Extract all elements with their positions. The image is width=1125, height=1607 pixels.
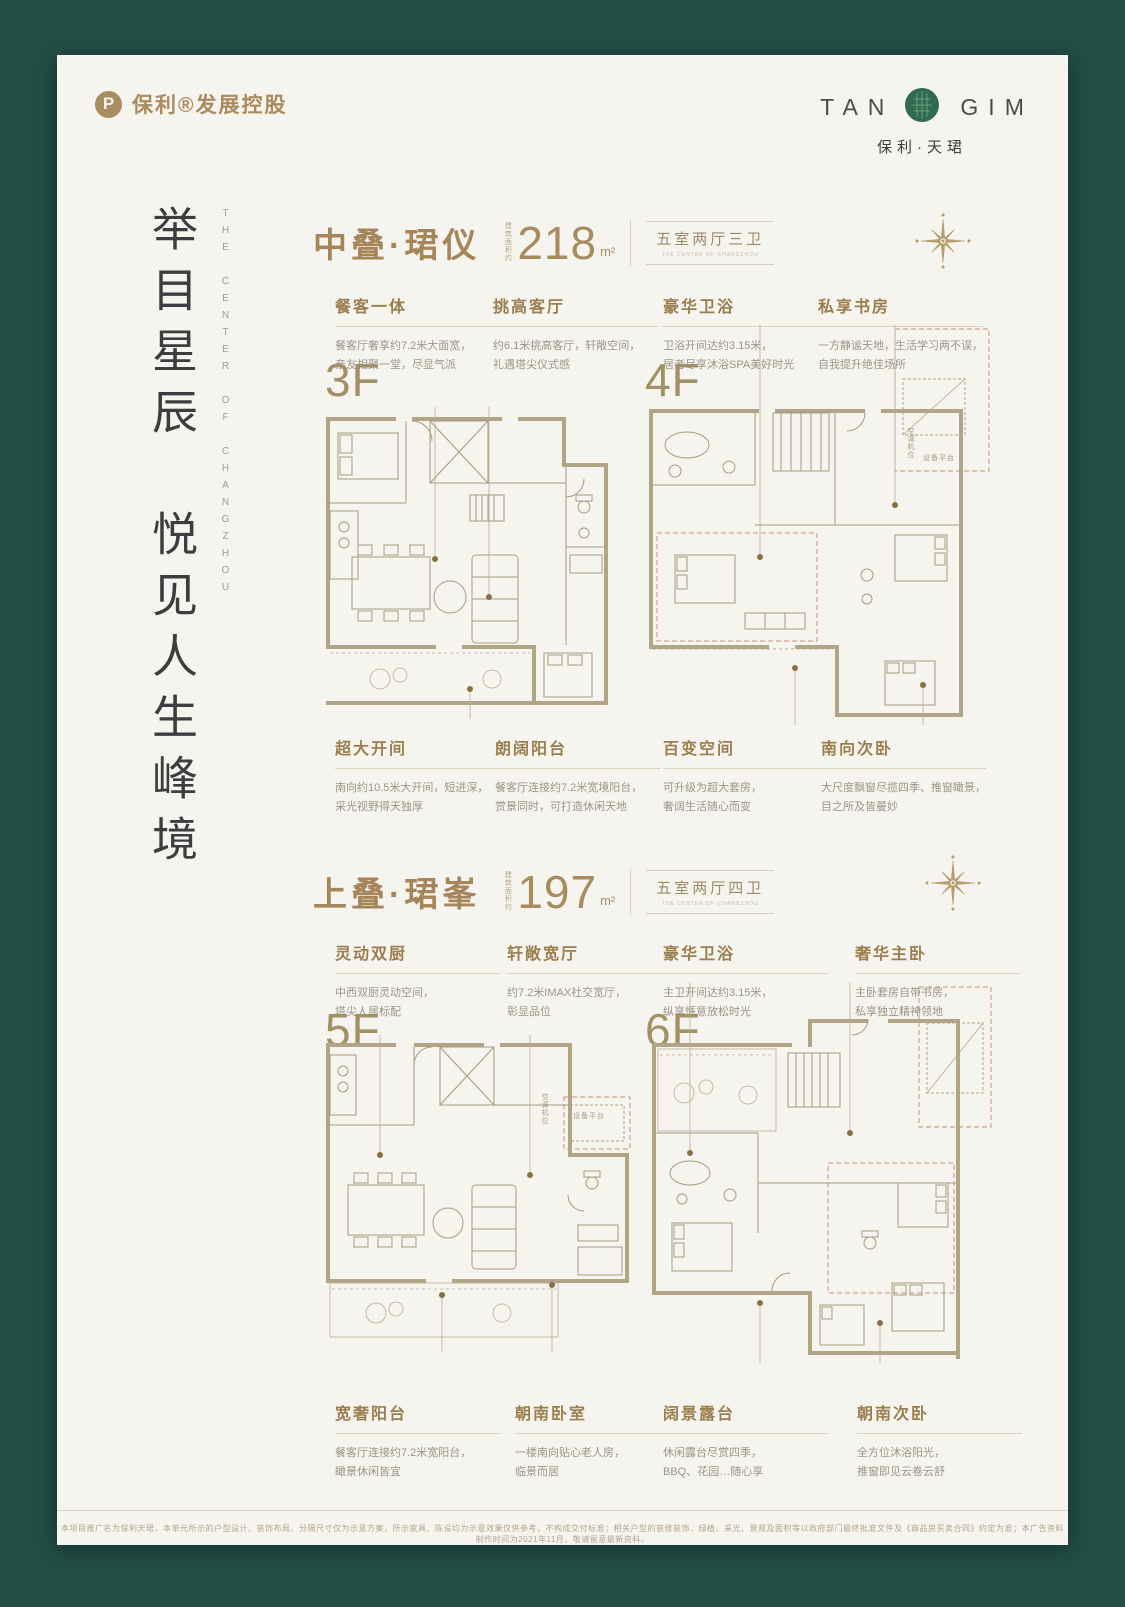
divider <box>663 1433 828 1434</box>
area-prefix: 建筑面积约 <box>502 871 512 913</box>
tangim-circle-icon <box>904 87 940 128</box>
divider <box>515 1433 680 1434</box>
spec-sub-text: THE CENTER OF CHANGZHOU <box>656 252 764 258</box>
feature-desc: 大尺度飘窗尽揽四季、推窗瞰景， 目之所及皆曼妙 <box>821 779 986 818</box>
feature-south-bedroom: 南向次卧 大尺度飘窗尽揽四季、推窗瞰景， 目之所及皆曼妙 <box>821 735 986 818</box>
feature-desc: 餐客厅连接约7.2米宽境阳台， 赏景同时，可打造休闲天地 <box>495 779 660 818</box>
divider <box>335 1433 500 1434</box>
feature-desc: 全方位沐浴阳光， 推窗即见云卷云舒 <box>857 1444 1022 1483</box>
feature-title: 超大开间 <box>335 735 500 759</box>
divider <box>335 326 500 327</box>
compass-icon <box>915 213 971 274</box>
brand-name: 保利®发展控股 <box>132 89 287 119</box>
feature-highceiling: 挑高客厅 约6.1米挑高客厅，轩敞空间， 礼遇塔尖仪式感 <box>493 293 658 376</box>
disclaimer-text: 本项目推广名为保利天珺，本单元所示的户型设计、装饰布局、分隔尺寸仅为示意方案，所… <box>57 1523 1068 1545</box>
hero-headline-en: THE CENTER OF CHANGZHOU <box>220 208 231 658</box>
brand-logo: P 保利®发展控股 <box>95 89 287 119</box>
divider <box>630 869 631 915</box>
feature-title: 阔景露台 <box>663 1400 828 1424</box>
divider <box>335 768 500 769</box>
poly-logo-icon: P <box>95 91 122 118</box>
floor-plan-4f <box>645 325 997 725</box>
feature-title: 私享书房 <box>818 293 983 317</box>
feature-desc: 一楼南向贴心老人房， 临景而居 <box>515 1444 680 1483</box>
floor-plan-5f <box>322 1035 637 1352</box>
feature-desc: 南向约10.5米大开间，短进深， 采光视野得天独厚 <box>335 779 500 818</box>
divider <box>495 768 660 769</box>
floor-plan-3f <box>322 407 612 719</box>
feature-wide-bay: 超大开间 南向约10.5米大开间，短进深， 采光视野得天独厚 <box>335 735 500 818</box>
floor-label-3f: 3F <box>325 357 381 403</box>
feature-desc: 餐客厅连接约7.2米宽阳台， 瞰景休闲皆宜 <box>335 1444 500 1483</box>
plan-note-equipment: 设备平台 <box>923 453 955 463</box>
project-logo: TAN GIM 保利·天珺 <box>802 87 1042 157</box>
divider <box>821 768 986 769</box>
feature-desc: 休闲露台尽赏四季， BBQ、花园…随心享 <box>663 1444 828 1483</box>
area-group: 建筑面积约 218 m² 五室两厅三卫 THE CENTER OF CHANGZ… <box>502 220 774 266</box>
feature-title: 朗阔阳台 <box>495 735 660 759</box>
feature-title: 挑高客厅 <box>493 293 658 317</box>
project-logo-right: GIM <box>950 94 1033 121</box>
feature-title: 豪华卫浴 <box>663 293 828 317</box>
feature-title: 朝南卧室 <box>515 1400 680 1424</box>
section-title: 上叠·珺峯 <box>313 867 480 916</box>
divider <box>630 220 631 266</box>
footer-divider <box>57 1510 1068 1511</box>
feature-title: 百变空间 <box>663 735 828 759</box>
area-unit: m² <box>600 893 615 908</box>
divider <box>855 973 1020 974</box>
area-value: 197 <box>517 869 597 915</box>
plan-note-ac: 空调机位 <box>539 1093 549 1127</box>
compass-icon <box>925 855 981 916</box>
spec-text: 五室两厅四卫 <box>656 877 764 898</box>
spec-box: 五室两厅三卫 THE CENTER OF CHANGZHOU <box>646 221 774 265</box>
feature-title: 宽奢阳台 <box>335 1400 500 1424</box>
divider <box>663 768 828 769</box>
feature-terrace: 阔景露台 休闲露台尽赏四季， BBQ、花园…随心享 <box>663 1400 828 1483</box>
feature-title: 餐客一体 <box>335 293 500 317</box>
feature-wide-balcony: 宽奢阳台 餐客厅连接约7.2米宽阳台， 瞰景休闲皆宜 <box>335 1400 500 1483</box>
feature-title: 南向次卧 <box>821 735 986 759</box>
divider <box>335 973 500 974</box>
spec-sub-text: THE CENTER OF CHANGZHOU <box>656 901 764 907</box>
section-title: 中叠·珺仪 <box>313 218 480 267</box>
feature-south-second: 朝南次卧 全方位沐浴阳光， 推窗即见云卷云舒 <box>857 1400 1022 1483</box>
area-unit: m² <box>600 244 615 259</box>
feature-title: 朝南次卧 <box>857 1400 1022 1424</box>
section-header-mid: 中叠·珺仪 建筑面积约 218 m² 五室两厅三卫 THE CENTER OF … <box>313 218 774 267</box>
floor-plan-6f <box>648 983 995 1363</box>
plan-note-ac: 空调机位 <box>905 427 915 461</box>
spec-box: 五室两厅四卫 THE CENTER OF CHANGZHOU <box>646 870 774 914</box>
divider <box>857 1433 1022 1434</box>
project-logo-left: TAN <box>810 94 894 121</box>
feature-desc: 可升级为超大套房， 奢阔生活随心而变 <box>663 779 828 818</box>
feature-south-room: 朝南卧室 一楼南向贴心老人房， 临景而居 <box>515 1400 680 1483</box>
area-group: 建筑面积约 197 m² 五室两厅四卫 THE CENTER OF CHANGZ… <box>502 869 774 915</box>
feature-title: 豪华卫浴 <box>663 940 828 964</box>
section-header-upper: 上叠·珺峯 建筑面积约 197 m² 五室两厅四卫 THE CENTER OF … <box>313 867 774 916</box>
feature-title: 灵动双厨 <box>335 940 500 964</box>
area-prefix: 建筑面积约 <box>502 222 512 264</box>
feature-desc: 约6.1米挑高客厅，轩敞空间， 礼遇塔尖仪式感 <box>493 337 658 376</box>
spec-text: 五室两厅三卫 <box>656 228 764 249</box>
hero-headline: 举目星辰 悦见人生峰境 <box>139 205 205 965</box>
plan-note-equipment: 设备平台 <box>573 1111 605 1121</box>
feature-title: 轩敞宽厅 <box>507 940 672 964</box>
area-value: 218 <box>517 220 597 266</box>
divider <box>507 973 672 974</box>
project-name: 保利·天珺 <box>802 136 1042 157</box>
poster-paper: P 保利®发展控股 TAN GIM 保利·天珺 举目星辰 悦见人生峰境 THE … <box>57 55 1068 1545</box>
divider <box>493 326 658 327</box>
feature-title: 奢华主卧 <box>855 940 1020 964</box>
divider <box>663 973 828 974</box>
feature-flex-space: 百变空间 可升级为超大套房， 奢阔生活随心而变 <box>663 735 828 818</box>
feature-balcony: 朗阔阳台 餐客厅连接约7.2米宽境阳台， 赏景同时，可打造休闲天地 <box>495 735 660 818</box>
